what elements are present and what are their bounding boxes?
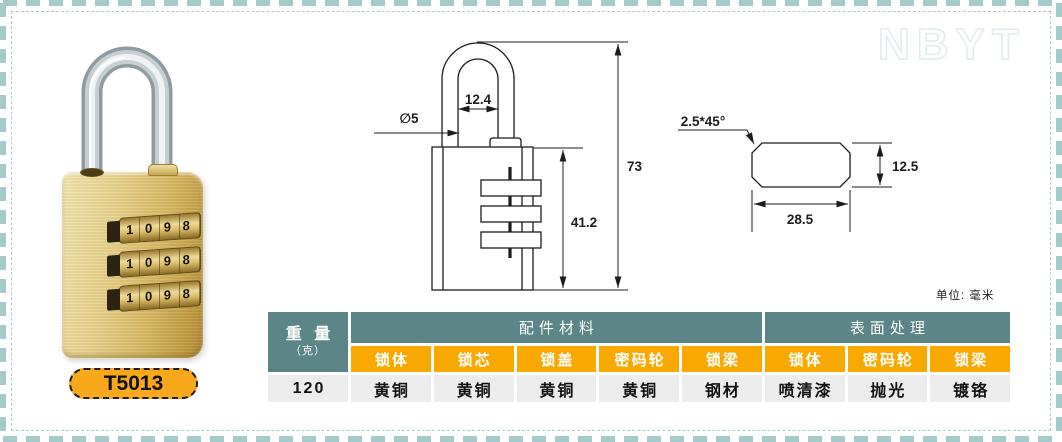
side-view-outline: [752, 143, 850, 187]
spec-table: 重 量 （克） 配件材料 表面处理 锁体 锁芯 锁盖 密码轮 锁梁 锁体 密码轮…: [268, 312, 1010, 402]
surface-shackle: 镀铬: [930, 375, 1010, 402]
material-lock-cover: 黄铜: [517, 375, 597, 402]
group-label: 表面处理: [845, 317, 930, 338]
dim-body-width: 28.5: [787, 212, 814, 227]
weight-unit: （克）: [290, 345, 326, 359]
column-header-code-wheel: 密码轮: [599, 346, 679, 372]
front-view-outline: [432, 43, 533, 290]
material-lock-cylinder: 黄铜: [434, 375, 514, 402]
material-lock-body: 黄铜: [351, 375, 431, 402]
column-header-shackle: 锁梁: [682, 346, 762, 372]
dim-shackle-inner-width: 12.4: [465, 92, 492, 107]
weight-header-cell: 重 量 （克）: [268, 312, 348, 372]
material-shackle: 钢材: [682, 375, 762, 402]
column-header-surface-shackle: 锁梁: [930, 346, 1010, 372]
dim-chamfer: 2.5*45°: [681, 114, 725, 129]
dim-body-height: 41.2: [571, 215, 597, 230]
column-header-lock-cylinder: 锁芯: [434, 346, 514, 372]
group-header-surface: 表面处理: [765, 312, 1010, 343]
column-header-lock-body: 锁体: [351, 346, 431, 372]
datasheet-page: NBYT 1 0 9 8 1 0 9 8 1 0 9 8 T5013: [0, 0, 1062, 442]
weight-label: 重 量: [282, 325, 334, 345]
dim-total-height: 73: [627, 159, 643, 174]
material-code-wheel: 黄铜: [599, 375, 679, 402]
front-view-wheels: [481, 167, 541, 258]
surface-lock-body: 喷清漆: [765, 375, 845, 402]
front-view-dimensions: [374, 42, 628, 290]
group-header-materials: 配件材料: [351, 312, 762, 343]
side-view-dimensions: [678, 130, 892, 232]
column-header-surface-code-wheel: 密码轮: [848, 346, 928, 372]
weight-value: 120: [268, 375, 348, 402]
group-label: 配件材料: [514, 317, 599, 338]
surface-code-wheel: 抛光: [848, 375, 928, 402]
column-header-lock-cover: 锁盖: [517, 346, 597, 372]
column-header-surface-lock-body: 锁体: [765, 346, 845, 372]
dim-shackle-diameter: ∅5: [399, 111, 419, 126]
units-note: 单位: 毫米: [936, 287, 994, 303]
dim-body-depth: 12.5: [892, 159, 919, 174]
